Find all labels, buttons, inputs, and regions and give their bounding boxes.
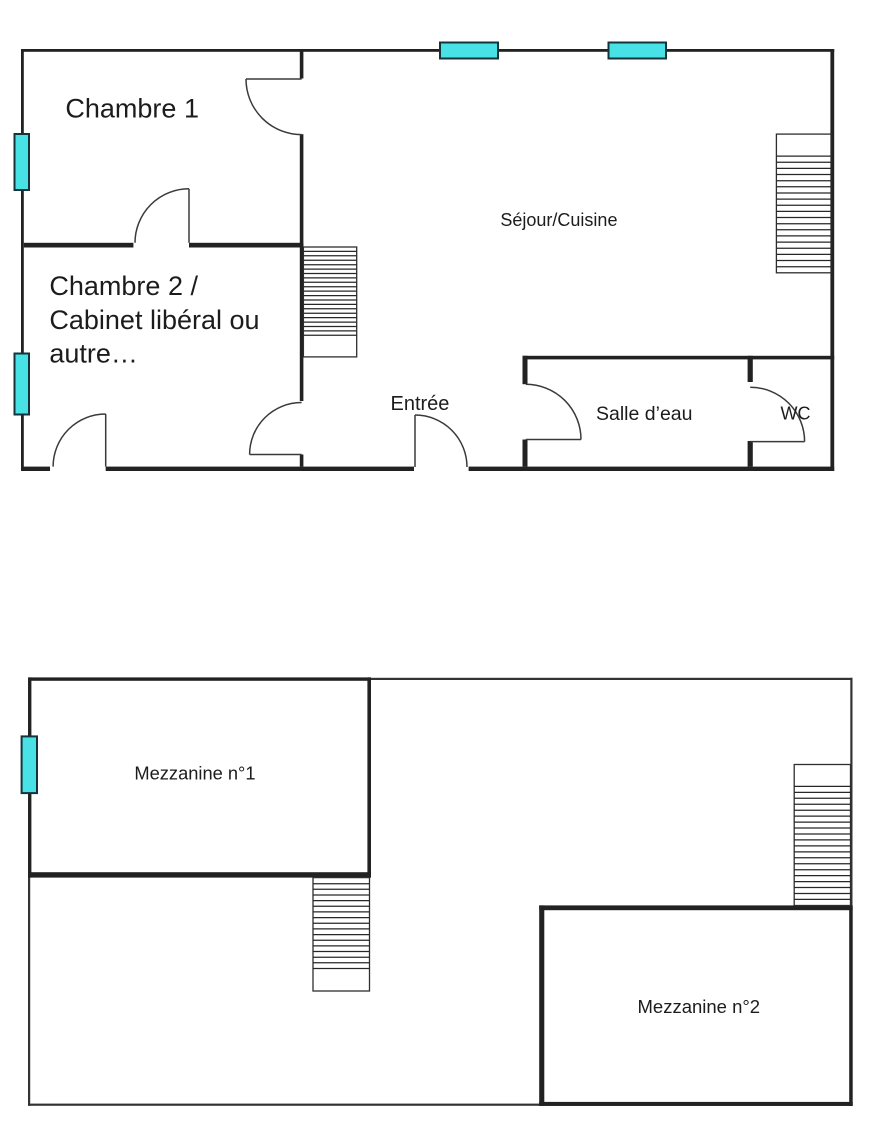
svg-text:Cabinet libéral ou: Cabinet libéral ou	[49, 305, 259, 335]
svg-text:autre…: autre…	[49, 338, 138, 368]
svg-text:WC: WC	[781, 403, 811, 423]
svg-text:Chambre 1: Chambre 1	[65, 93, 199, 123]
svg-text:Salle d’eau: Salle d’eau	[596, 403, 693, 425]
svg-text:Chambre 2 /: Chambre 2 /	[49, 271, 198, 301]
svg-text:Mezzanine n°1: Mezzanine n°1	[134, 763, 255, 784]
svg-text:Mezzanine n°2: Mezzanine n°2	[638, 996, 761, 1017]
svg-text:Entrée: Entrée	[391, 393, 450, 415]
svg-text:Séjour/Cuisine: Séjour/Cuisine	[500, 210, 617, 230]
